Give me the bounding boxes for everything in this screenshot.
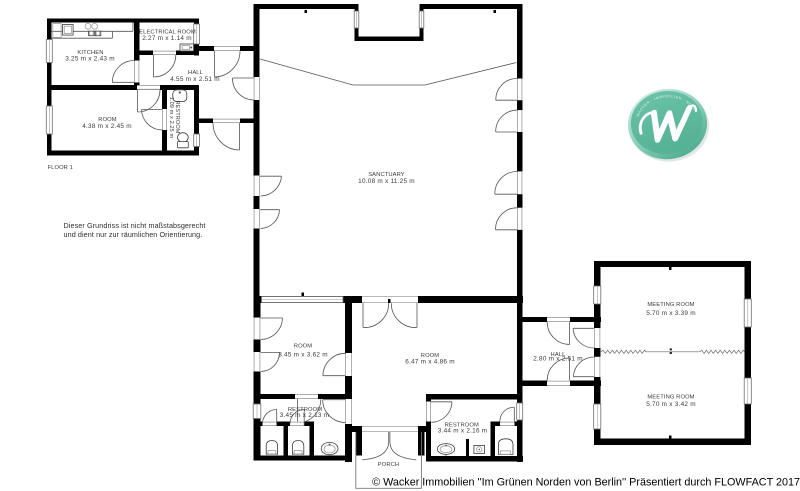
svg-text:3.44 m x 2.16 m: 3.44 m x 2.16 m: [438, 428, 488, 435]
svg-text:RESTROOM: RESTROOM: [174, 100, 180, 133]
svg-text:MEETING ROOM: MEETING ROOM: [647, 302, 694, 308]
svg-text:5.70 m x 3.39 m: 5.70 m x 3.39 m: [646, 310, 696, 317]
svg-text:4.38 m x 2.45 m: 4.38 m x 2.45 m: [82, 123, 132, 130]
svg-text:ROOM: ROOM: [294, 343, 313, 349]
svg-text:2.27 m x 1.14 m: 2.27 m x 1.14 m: [142, 35, 192, 42]
svg-text:6.47 m x 4.86 m: 6.47 m x 4.86 m: [405, 359, 455, 366]
svg-text:und dient nur zur räumlichen O: und dient nur zur räumlichen Orientierun…: [64, 230, 203, 239]
svg-text:1.09 m x 2.25 m: 1.09 m x 2.25 m: [168, 97, 174, 139]
svg-text:PORCH: PORCH: [378, 462, 399, 468]
svg-text:MEETING ROOM: MEETING ROOM: [647, 394, 694, 400]
svg-text:10.08 m x 11.25 m: 10.08 m x 11.25 m: [358, 178, 415, 185]
svg-text:4.55 m x 2.51 m: 4.55 m x 2.51 m: [170, 76, 220, 83]
svg-text:© Wacker Immobilien ''Im Grüne: © Wacker Immobilien ''Im Grünen Norden v…: [372, 476, 800, 488]
svg-text:2.80 m x 2.51 m: 2.80 m x 2.51 m: [533, 356, 583, 363]
svg-text:FLOOR 1: FLOOR 1: [48, 165, 74, 171]
svg-text:5.70 m x 3.42 m: 5.70 m x 3.42 m: [646, 401, 696, 408]
svg-text:3.25 m x 2.43 m: 3.25 m x 2.43 m: [65, 55, 115, 62]
svg-text:Dieser Grundriss ist nicht maß: Dieser Grundriss ist nicht maßstabsgerec…: [64, 221, 206, 230]
svg-text:3.45 m x 2.13 m: 3.45 m x 2.13 m: [280, 412, 330, 419]
svg-text:3.45 m x 3.62 m: 3.45 m x 3.62 m: [278, 352, 328, 359]
